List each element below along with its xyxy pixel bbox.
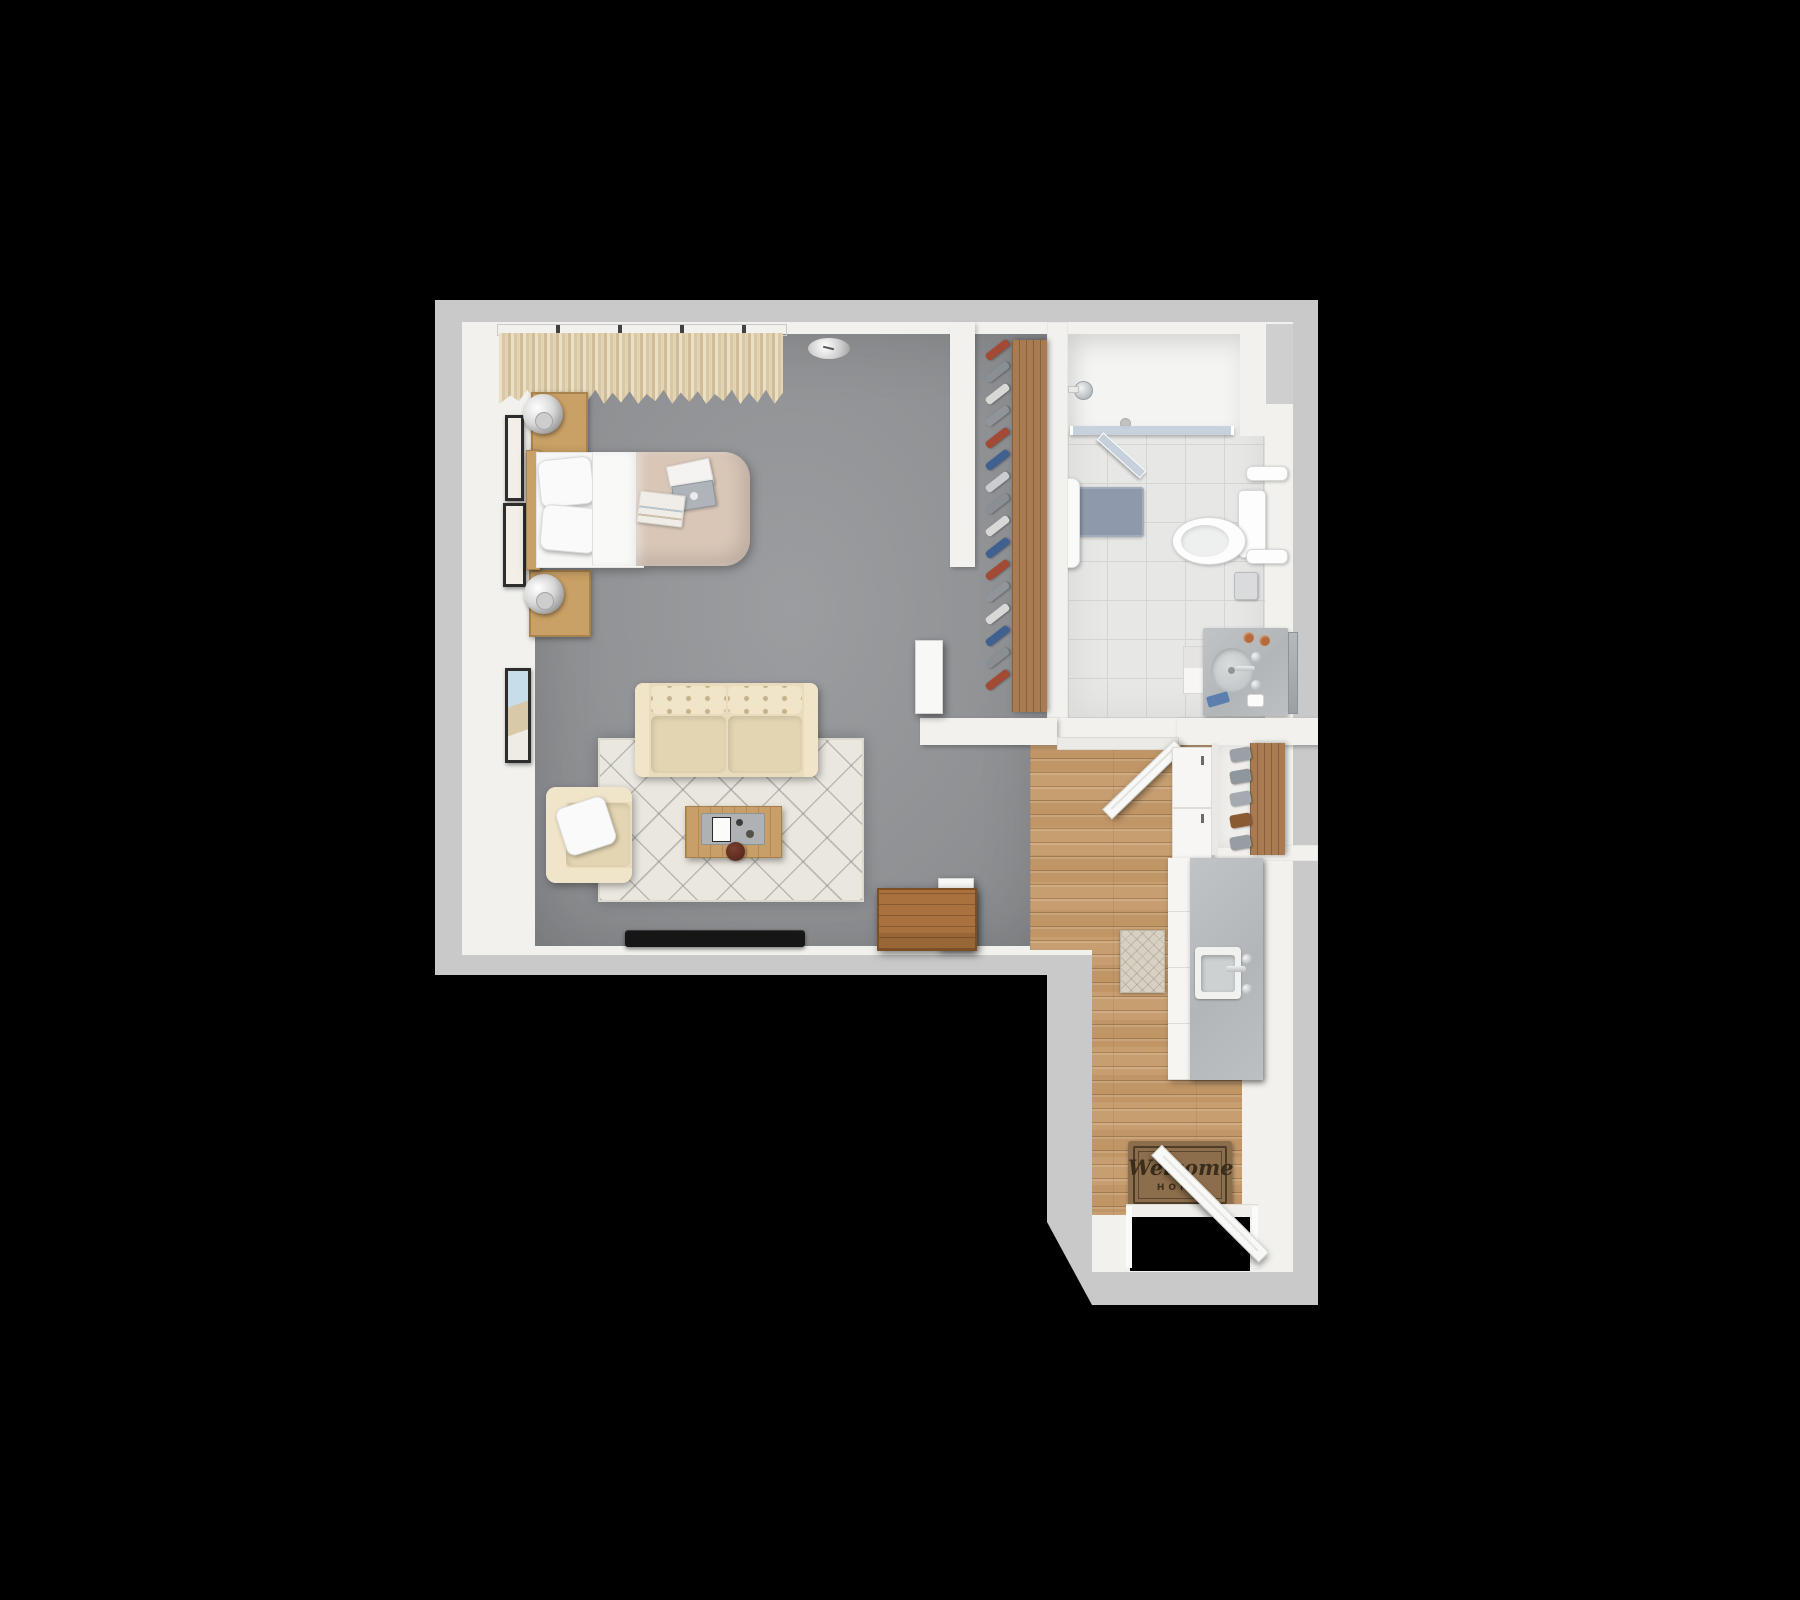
kitchen-cabinet-fronts [1168, 858, 1191, 1080]
clothes-hanger-item [984, 405, 1010, 428]
walk-in-shower [1068, 334, 1242, 434]
wall-frame-2 [503, 503, 526, 587]
shelf-item [1229, 790, 1252, 806]
clothes-hanger-item [984, 515, 1010, 538]
shower-glass-panel [1070, 426, 1234, 435]
closet-partition-wall [950, 322, 975, 567]
clothes-hanger-item [984, 471, 1010, 494]
sofa-back-cushion-right [728, 686, 802, 714]
laptop-logo [689, 491, 698, 500]
kitchen-faucet-handle-1 [1242, 954, 1252, 964]
sink-drain-icon [1228, 667, 1235, 674]
clothes-hanger-item [984, 669, 1010, 692]
shelf-item [1229, 746, 1252, 762]
clothes-hanger-item [984, 449, 1010, 472]
cabinet-divider [1173, 807, 1211, 809]
duct-shaft [1266, 324, 1296, 404]
clothes-hanger-item [984, 581, 1010, 604]
table-lamp-lower-icon [524, 574, 564, 614]
closet-bathroom-wall [1047, 322, 1068, 718]
clothes-hanger-item [984, 361, 1010, 384]
copper-cup-1 [1243, 632, 1254, 643]
tray-card [712, 817, 731, 842]
closet-shelf [1012, 340, 1047, 712]
hanging-clothes [982, 346, 1014, 700]
twin-bed [526, 450, 750, 568]
ceiling-light-icon [807, 337, 851, 360]
soap-dispenser [1247, 694, 1264, 707]
bathroom-door-threshold [1057, 737, 1179, 750]
clothes-hanger-item [984, 559, 1010, 582]
kitchen-sink-basin [1201, 955, 1235, 992]
lamp-ball-upper [535, 412, 553, 430]
table-lamp-upper-icon [523, 394, 563, 434]
loveseat-sofa [635, 683, 818, 777]
clothes-hanger-item [984, 493, 1010, 516]
kitchen-counter [1168, 858, 1263, 1080]
kitchen-sink [1195, 947, 1241, 999]
copper-cup-2 [1259, 635, 1270, 646]
toilet-paper-holder-icon [1234, 572, 1258, 600]
floor-plan-scene: Welcome HOME [0, 0, 1800, 1600]
wall-frame-1 [505, 415, 524, 501]
hall-wall-left-segment [920, 718, 1057, 745]
storage-chest [877, 888, 977, 951]
shelf-item [1229, 768, 1252, 784]
sofa-seat-cushion-right [728, 716, 802, 773]
sofa-back-cushion-left [651, 686, 726, 714]
ceiling-light-detail [823, 346, 834, 351]
tall-cabinet [1172, 747, 1212, 859]
vanity-mirror [1288, 632, 1298, 714]
cabinet-handle-lower-icon [1201, 814, 1204, 823]
faucet-handle-lower [1251, 680, 1261, 690]
armchair [546, 787, 632, 883]
kitchen-faucet-handle-2 [1242, 984, 1252, 994]
clothes-hanger-item [984, 603, 1010, 626]
coffee-table [685, 806, 782, 858]
tray-item-2 [746, 830, 754, 838]
lamp-ball-lower [536, 592, 554, 610]
kitchen-mat [1120, 930, 1165, 993]
entry-door-jamb-left [1126, 1206, 1132, 1268]
clothes-hanger-item [984, 383, 1010, 406]
clothes-hanger-item [984, 647, 1010, 670]
toilet-bowl-inner [1181, 525, 1229, 557]
towel-bar-upper [1246, 466, 1288, 481]
faucet-spout [1235, 666, 1255, 671]
towel-bar-lower [1246, 549, 1288, 564]
closet-door [915, 640, 943, 714]
hall-closet-left-wall [1212, 743, 1218, 855]
hall-closet-items [1228, 748, 1254, 848]
faucet-handle-upper [1251, 652, 1261, 662]
folded-sheet [592, 452, 641, 566]
hall-closet-shelf [1250, 743, 1285, 855]
vanity-drawers [1183, 646, 1205, 694]
hall-wall-right-segment [1177, 718, 1318, 745]
magazine-on-bed [636, 490, 686, 527]
vanity [1183, 628, 1296, 718]
sofa-arm-left [635, 683, 649, 777]
bath-mat [1078, 487, 1144, 537]
toilet-bowl [1172, 517, 1246, 565]
serving-tray [701, 813, 765, 845]
sofa-seat-cushion-left [651, 716, 726, 773]
bed-pillow-1 [537, 455, 596, 508]
kitchen-faucet-spout [1226, 966, 1246, 972]
clothes-hanger-item [984, 427, 1010, 450]
wall-frame-3 [505, 668, 531, 763]
clothes-hanger-item [984, 625, 1010, 648]
decor-bowl [726, 842, 745, 861]
cabinet-handle-upper-icon [1201, 756, 1204, 765]
bed-pillow-2 [539, 504, 599, 555]
shower-arm [1068, 386, 1079, 393]
clothes-hanger-item [984, 537, 1010, 560]
sofa-arm-right [804, 683, 818, 777]
tray-item-1 [736, 819, 743, 826]
flat-tv [625, 930, 805, 947]
armchair-arm-bottom [562, 868, 632, 883]
toilet [1172, 466, 1288, 606]
shower-side-wall [1240, 334, 1265, 436]
shelf-item [1229, 812, 1252, 828]
